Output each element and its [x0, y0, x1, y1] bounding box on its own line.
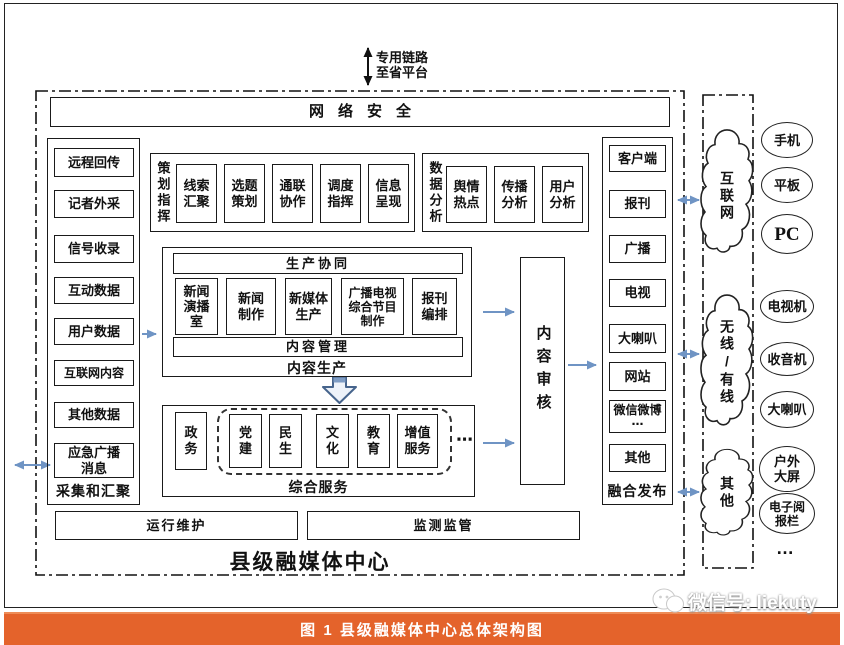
county-center-label: 县级融媒体中心	[90, 546, 530, 576]
publish-item: 大喇叭	[609, 324, 666, 353]
publish-item: 微信微博 ⋯	[609, 400, 666, 433]
monitoring-bar: 监测监管	[307, 511, 580, 540]
production-item: 广播电视 综合节目 制作	[341, 278, 404, 335]
analysis-group-label: 数据分析	[425, 158, 445, 228]
device-oval: 电视机	[760, 290, 814, 323]
collect-item: 互动数据	[54, 277, 134, 304]
planning-item: 线索 汇聚	[176, 164, 217, 223]
publish-item: 报刊	[609, 190, 666, 218]
internet-cloud-label: 互联网	[713, 150, 741, 242]
production-item: 新闻 制作	[226, 278, 276, 335]
publish-item: 其他	[609, 444, 666, 472]
publish-item: 广播	[609, 235, 666, 263]
services-item: 教 育	[357, 414, 390, 468]
device-oval: 大喇叭	[760, 391, 814, 428]
production-group-label: 内容生产	[162, 358, 472, 378]
device-oval: 平板	[761, 167, 813, 203]
diagram-page: 专用链路 至省平台 网络安全 远程回传 记者外采 信号收录 互动数据 用户数据 …	[0, 0, 844, 645]
collect-item: 远程回传	[54, 148, 134, 177]
collect-item: 记者外采	[54, 190, 134, 218]
publish-item: 客户端	[609, 145, 666, 172]
production-item: 报刊 编排	[412, 278, 457, 335]
planning-item: 调度 指挥	[320, 164, 361, 223]
collect-item: 信号收录	[54, 235, 134, 263]
services-gov-item: 政 务	[175, 412, 207, 470]
production-item: 新闻 演播 室	[175, 278, 218, 335]
review-label: 内容审核	[535, 325, 551, 417]
device-oval: 手机	[761, 122, 813, 158]
analysis-item: 传播 分析	[494, 166, 535, 223]
provincial-link-label: 专用链路 至省平台	[376, 50, 446, 80]
device-oval: 电子阅 报栏	[759, 493, 815, 534]
collect-group-label: 采集和汇聚	[47, 481, 140, 501]
review-box: 内容审核	[520, 257, 565, 485]
other-cloud-label: 其他	[713, 464, 741, 522]
publish-group-label: 融合发布	[602, 481, 673, 501]
watermark: 微信号: liekuty	[652, 584, 844, 618]
planning-item: 选题 策划	[224, 164, 265, 223]
services-group-label: 综合服务	[162, 477, 475, 497]
analysis-item: 舆情 热点	[446, 166, 487, 223]
services-item: 民 生	[269, 414, 302, 468]
collect-item: 用户数据	[54, 318, 134, 345]
publish-item: 电视	[609, 279, 666, 307]
services-more-dots: ⋯	[456, 430, 473, 450]
network-security-banner: 网络安全	[50, 97, 670, 127]
collect-item: 互联网内容	[54, 360, 134, 386]
analysis-item: 用户 分析	[542, 166, 583, 223]
planning-group-label: 策划指挥	[153, 158, 173, 228]
figure-caption-text: 图 1 县级融媒体中心总体架构图	[300, 619, 544, 640]
devices-more-dots: …	[776, 538, 794, 559]
block-arrow-shaft-cap	[334, 378, 346, 383]
content-management-bar: 内容管理	[173, 337, 463, 357]
services-item: 增值 服务	[397, 414, 438, 468]
collect-item: 应急广播 消息	[54, 443, 134, 478]
collect-item: 其他数据	[54, 402, 134, 428]
wireless-cable-cloud-label: 无线/有线	[713, 312, 741, 412]
device-oval: 收音机	[760, 342, 814, 376]
device-oval: PC	[761, 214, 813, 254]
publish-item: 网站	[609, 362, 666, 391]
operations-bar: 运行维护	[55, 511, 298, 540]
services-item: 文 化	[316, 414, 349, 468]
wechat-icon	[652, 587, 684, 615]
planning-item: 通联 协作	[272, 164, 313, 223]
planning-item: 信息 呈现	[368, 164, 409, 223]
device-oval: 户外 大屏	[759, 446, 815, 492]
production-item: 新媒体 生产	[285, 278, 332, 335]
production-collab-bar: 生产协同	[173, 253, 463, 274]
services-item: 党 建	[229, 414, 262, 468]
watermark-text: 微信号: liekuty	[688, 588, 817, 615]
